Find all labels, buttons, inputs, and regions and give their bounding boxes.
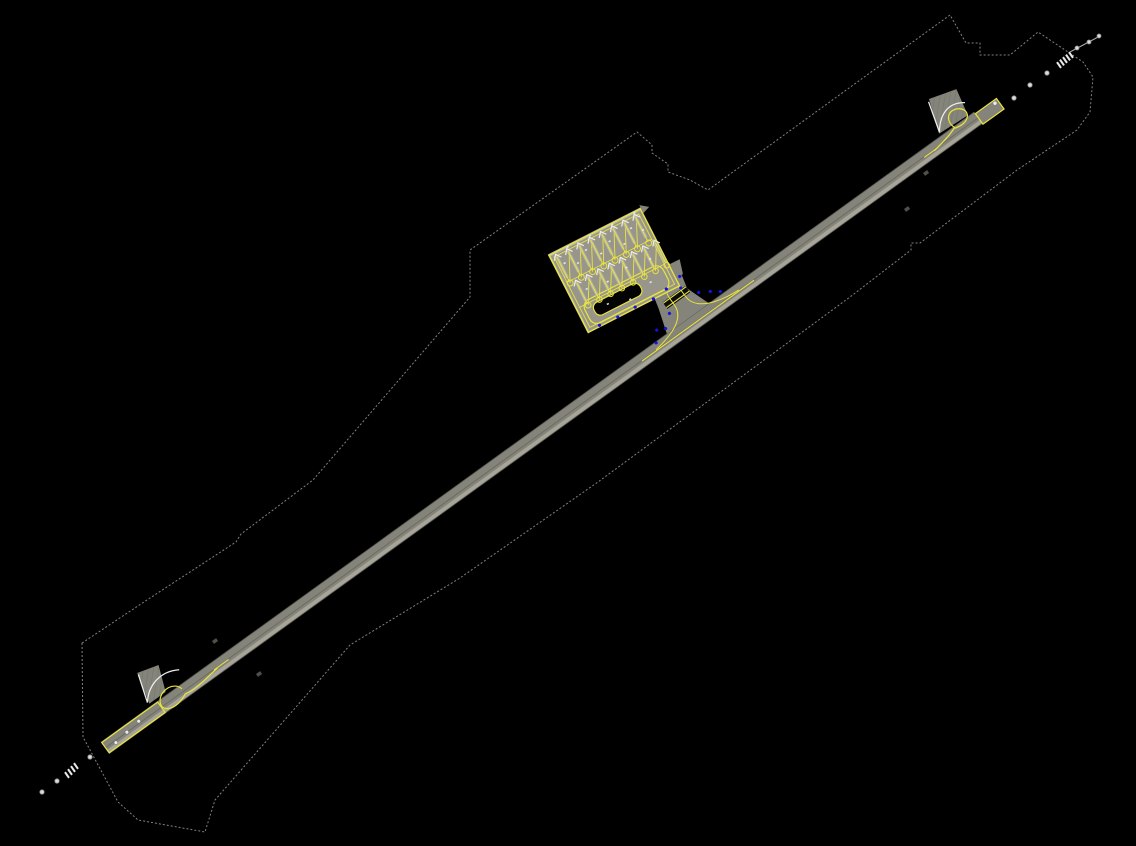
runway-blast-pad-ne xyxy=(975,98,1004,124)
approach-light xyxy=(40,790,44,794)
annotation-mark xyxy=(923,170,929,176)
blue-edge-light xyxy=(655,328,659,332)
blue-edge-light xyxy=(718,289,722,293)
runway-group xyxy=(68,51,1005,755)
approach-light xyxy=(88,755,92,759)
blue-edge-light xyxy=(708,289,712,293)
airport-site-plan xyxy=(0,0,1136,846)
annotation-mark xyxy=(256,671,262,677)
approach-light xyxy=(1045,71,1049,75)
approach-light xyxy=(55,779,59,783)
approach-light xyxy=(1075,46,1079,50)
runway-centerline xyxy=(105,118,978,748)
approach-light xyxy=(1028,83,1032,87)
runway-edge-line xyxy=(101,112,974,742)
runway-shoulder-stripe xyxy=(107,120,983,754)
approach-light xyxy=(1097,34,1101,38)
approach-light-bar xyxy=(70,766,76,773)
approach-light-bar xyxy=(64,772,70,779)
approach-light xyxy=(1012,96,1016,100)
runway-edge-line xyxy=(109,123,982,753)
approach-lights-sw xyxy=(40,755,92,794)
annotation-mark xyxy=(212,638,218,644)
cad-model-space-canvas[interactable] xyxy=(0,0,1136,846)
approach-light-bar xyxy=(67,769,73,776)
approach-light xyxy=(1087,40,1091,44)
annotation-mark xyxy=(904,206,910,212)
approach-light-bar xyxy=(73,763,79,770)
approach-light-line xyxy=(1070,36,1100,52)
blue-edge-light xyxy=(696,290,700,294)
